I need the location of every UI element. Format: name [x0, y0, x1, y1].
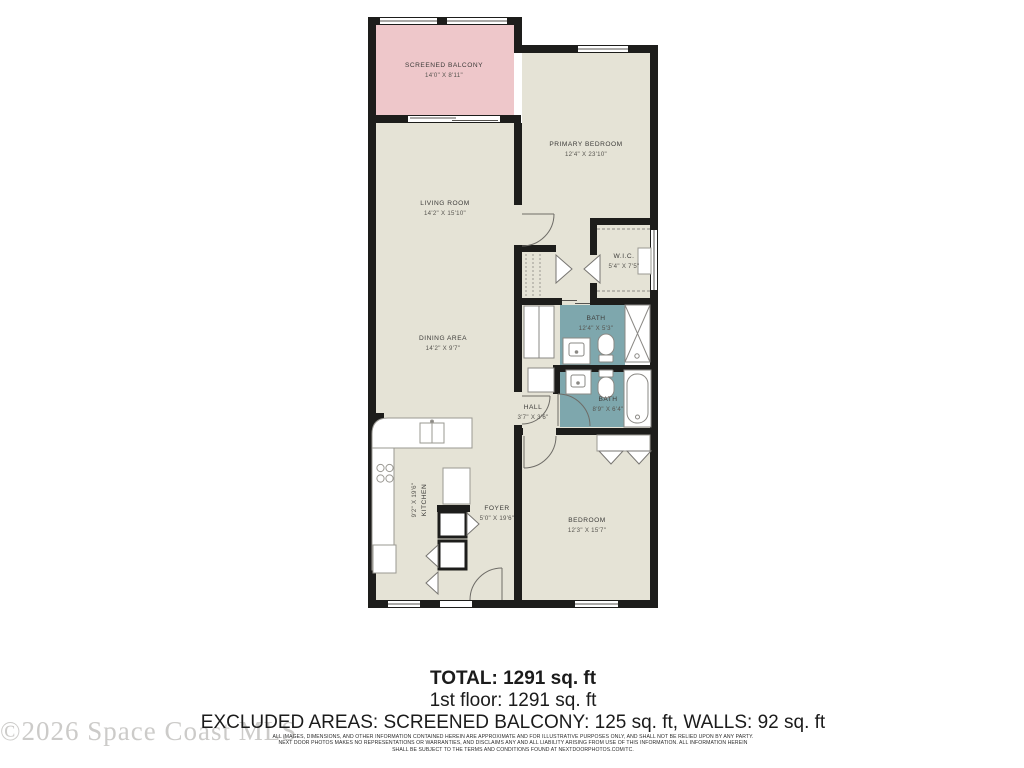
window-bedroom-bottom: [575, 601, 618, 607]
balcony-floor: [376, 24, 514, 116]
wall-bath-primary-top-right: [590, 298, 658, 305]
wall-wic-top: [590, 218, 658, 225]
window-wic-right: [651, 230, 657, 290]
excluded-areas-text: EXCLUDED AREAS: SCREENED BALCONY: 125 sq…: [0, 712, 1024, 734]
first-floor-area-text: 1st floor: 1291 sq. ft: [0, 690, 1024, 712]
wall-wic-left-lower: [590, 283, 597, 298]
hall-cabinet-2: [528, 368, 554, 392]
area-summary: TOTAL: 1291 sq. ft 1st floor: 1291 sq. f…: [0, 668, 1024, 734]
wall-bath-primary-top-left: [514, 298, 562, 305]
entry-threshold: [440, 601, 472, 607]
window-primary-bedroom: [578, 46, 628, 52]
wall-dining-hall: [514, 250, 522, 392]
vanity-sink-bath-hall: [566, 370, 591, 394]
window-kitchen-bottom: [388, 601, 420, 607]
wall-living-primary: [514, 123, 522, 205]
toilet-bath-hall: [598, 370, 614, 398]
window-balcony-slider: [408, 116, 500, 122]
floor-fills: [376, 24, 650, 600]
total-area-text: TOTAL: 1291 sq. ft: [0, 668, 1024, 690]
refrigerator-icon: [373, 545, 396, 573]
doorway-floor-1: [514, 205, 522, 250]
floorplan-page: SCREENED BALCONY 14'0" X 8'11" PRIMARY B…: [0, 0, 1024, 768]
wall-closet-top: [514, 245, 556, 252]
toilet-bath-primary: [598, 334, 614, 362]
bedroom-closet-shelf: [597, 435, 650, 451]
doorway-floor-2: [514, 392, 522, 425]
pantry-cell-2: [439, 541, 466, 569]
floor-plan-drawing: [0, 0, 1024, 768]
bathtub-icon: [624, 370, 651, 427]
wall-right-exterior: [650, 45, 658, 608]
shower-bath-primary: [625, 305, 650, 362]
disclaimer: ALL IMAGES, DIMENSIONS, AND OTHER INFORM…: [0, 734, 1024, 753]
wall-bedroom-top-right: [556, 428, 658, 435]
wall-wic-left-upper: [590, 225, 597, 255]
vanity-sink-bath-primary: [563, 338, 590, 364]
wic-shelf: [638, 248, 651, 274]
kitchen-island: [443, 468, 470, 504]
kitchen-sink-icon: [420, 420, 444, 443]
pantry-cell-1: [439, 512, 466, 537]
wall-foyer-bedroom: [514, 425, 522, 600]
disclaimer-line-3: SHALL BE SUBJECT TO THE TERMS AND CONDIT…: [0, 747, 1024, 753]
wall-bedroom-top-left: [514, 428, 523, 435]
